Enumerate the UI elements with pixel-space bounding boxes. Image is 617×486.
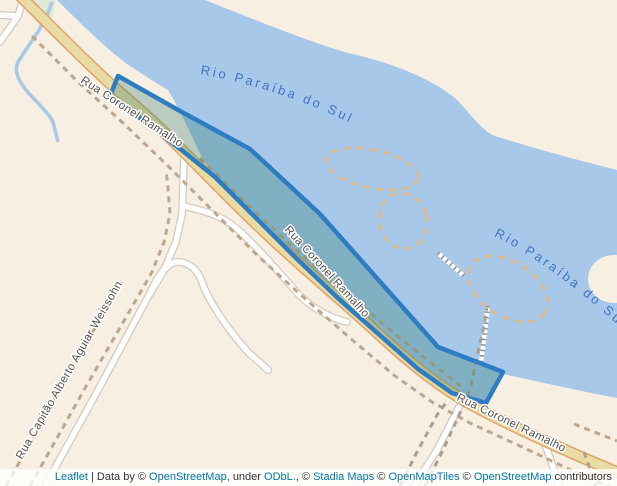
attribution-text: © bbox=[460, 471, 474, 483]
attribution-link-odbl[interactable]: ODbL. bbox=[264, 471, 296, 483]
attribution-text: , © bbox=[296, 471, 313, 483]
attribution-text: | Data by © bbox=[88, 471, 149, 483]
attribution-link-leaflet[interactable]: Leaflet bbox=[55, 471, 88, 483]
attribution-link-openstreetmap[interactable]: OpenStreetMap bbox=[149, 471, 227, 483]
attribution-link-stadia-maps[interactable]: Stadia Maps bbox=[313, 471, 374, 483]
attribution-text: contributors bbox=[551, 471, 612, 483]
attribution-link-openstreetmap-2[interactable]: OpenStreetMap bbox=[474, 471, 552, 483]
attribution-text: , under bbox=[227, 471, 264, 483]
leaflet-map[interactable]: Rio Paraíba do Sul Rio Paraíba do Sul Ru… bbox=[0, 0, 617, 486]
attribution-link-openmaptiles[interactable]: OpenMapTiles bbox=[388, 471, 459, 483]
map-canvas[interactable]: Rio Paraíba do Sul Rio Paraíba do Sul Ru… bbox=[0, 0, 617, 486]
attribution-text: © bbox=[374, 471, 388, 483]
attribution-bar: Leaflet | Data by © OpenStreetMap, under… bbox=[0, 469, 617, 486]
